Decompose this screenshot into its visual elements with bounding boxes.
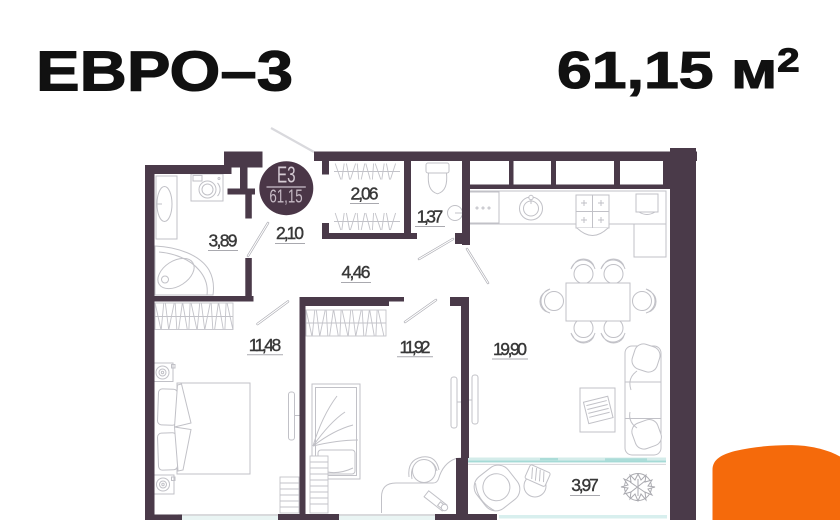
svg-text:4,46: 4,46 bbox=[342, 262, 371, 282]
svg-text:Е3: Е3 bbox=[277, 162, 296, 188]
svg-text:ЕВРО–3: ЕВРО–3 bbox=[36, 38, 293, 102]
svg-text:1,37: 1,37 bbox=[417, 207, 444, 227]
svg-text:3,97: 3,97 bbox=[571, 475, 599, 495]
svg-text:2,10: 2,10 bbox=[276, 223, 304, 243]
svg-text:2,06: 2,06 bbox=[351, 184, 379, 204]
svg-text:11,48: 11,48 bbox=[249, 335, 282, 355]
svg-text:19,90: 19,90 bbox=[493, 339, 527, 359]
svg-text:11,92: 11,92 bbox=[400, 337, 431, 357]
svg-text:61,15: 61,15 bbox=[269, 186, 302, 207]
svg-text:3,89: 3,89 bbox=[209, 231, 238, 251]
svg-text:61,15 м2: 61,15 м2 bbox=[557, 42, 800, 100]
